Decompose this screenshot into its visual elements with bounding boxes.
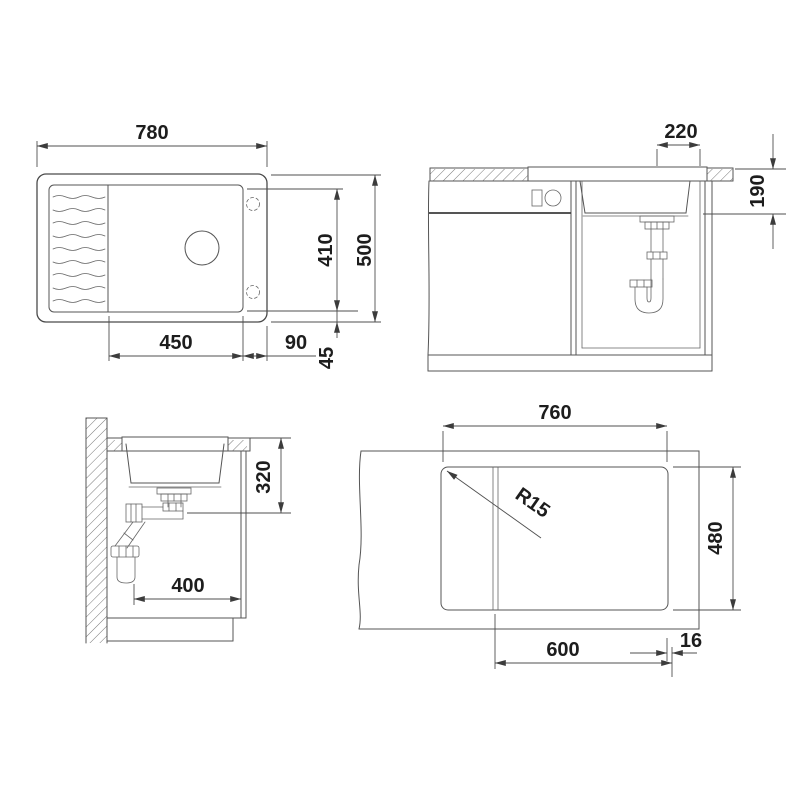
sink-rim-section	[528, 167, 707, 181]
dim-600-label: 600	[546, 639, 579, 661]
cabinet-front	[428, 181, 712, 371]
dim-410-label: 410	[315, 233, 337, 266]
drain-siphon-front	[630, 216, 674, 313]
dim-600: 600	[495, 614, 672, 677]
bowl-section	[580, 181, 690, 213]
dim-450-90: 450 90	[109, 316, 316, 361]
plan-view: 780 410 45 500 450 90	[37, 122, 381, 369]
dim-760: 760	[443, 402, 667, 462]
dim-480: 480	[673, 467, 741, 610]
countertop-break-edge	[358, 451, 361, 629]
dim-190: 190	[703, 134, 786, 249]
dim-780: 780	[37, 122, 267, 167]
wall-hatch	[86, 418, 107, 643]
dim-400: 400	[134, 575, 241, 605]
technical-drawing-page: 780 410 45 500 450 90	[0, 0, 800, 800]
dim-16: 16	[630, 630, 702, 661]
dim-320-label: 320	[253, 460, 275, 493]
dim-480-label: 480	[705, 521, 727, 554]
cutout-view: R15 760 480 600 16	[358, 402, 741, 677]
sink-installation-drawing: 780 410 45 500 450 90	[0, 0, 800, 800]
dim-500-label: 500	[354, 233, 376, 266]
dim-450-label: 450	[159, 332, 192, 354]
sink-inner-rim	[49, 185, 243, 312]
dim-190-label: 190	[747, 174, 769, 207]
dim-220-label: 220	[664, 121, 697, 143]
counter-hatch-left	[107, 440, 122, 451]
sink-rim-section-side	[122, 437, 228, 451]
dim-400-label: 400	[171, 575, 204, 597]
dim-220: 220	[657, 121, 700, 166]
side-section-view: 320 400	[86, 418, 291, 643]
cutout-outline	[441, 467, 668, 610]
dim-780-label: 780	[135, 122, 168, 144]
dim-16-label: 16	[680, 630, 702, 652]
counter-hatch-right	[228, 440, 247, 451]
front-view: 220 190	[428, 121, 786, 371]
countertop-hatch-left	[430, 169, 528, 181]
overflow-window	[532, 190, 542, 206]
drain-control-knob	[545, 190, 561, 206]
dim-45-label: 45	[316, 347, 338, 369]
countertop-hatch-right	[707, 169, 733, 181]
dim-90-label: 90	[285, 332, 307, 354]
drain-piping-side	[111, 488, 191, 583]
dim-760-label: 760	[538, 402, 571, 424]
